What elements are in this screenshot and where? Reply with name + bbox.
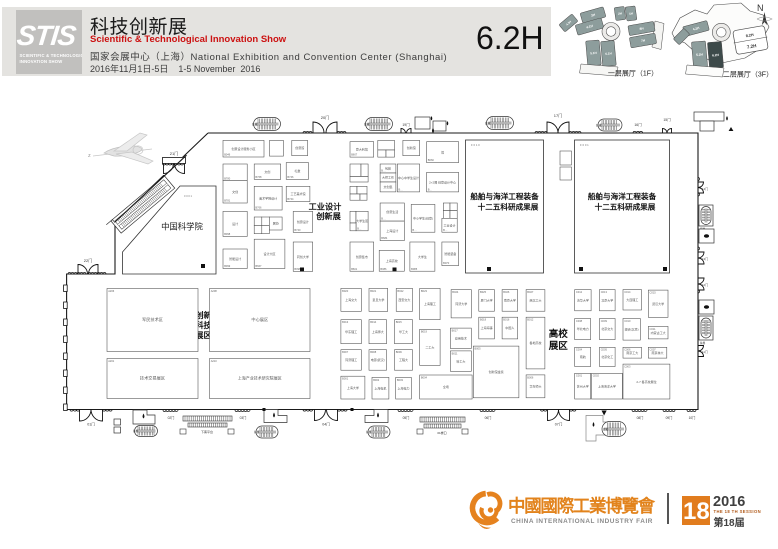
svg-text:5.1H: 5.1H xyxy=(590,51,597,56)
svg-text:5.2H: 5.2H xyxy=(696,52,704,57)
svg-text:一层展厅（1F）: 一层展厅（1F） xyxy=(608,70,658,78)
svg-text:2H: 2H xyxy=(618,11,622,15)
svg-text:N: N xyxy=(757,3,764,13)
svg-text:1H: 1H xyxy=(629,11,633,15)
svg-text:6.1H: 6.1H xyxy=(605,51,612,56)
svg-text:二层展厅（3F）: 二层展厅（3F） xyxy=(723,71,773,79)
svg-text:6.2H: 6.2H xyxy=(712,53,720,58)
